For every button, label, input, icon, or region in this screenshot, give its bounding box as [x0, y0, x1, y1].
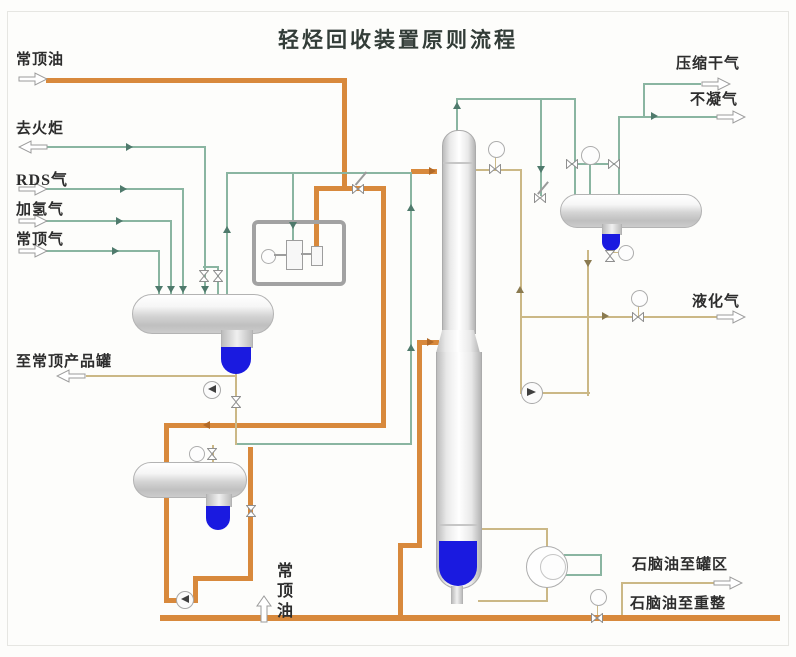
control-valve-icon — [352, 184, 364, 194]
instrument-circle — [189, 446, 205, 462]
bottoms-pump-arrow-icon — [181, 595, 189, 603]
page-title: 轻烃回收装置原则流程 — [0, 24, 796, 54]
valve-icon — [591, 613, 603, 623]
pipe-loop-top-h — [226, 172, 412, 174]
pipe-flare-v — [204, 146, 206, 266]
pipe-reboiler-stub-v — [600, 554, 602, 576]
pipe-ovhd-h — [456, 98, 576, 100]
bottom-drum-vessel — [133, 462, 247, 498]
stream-connector-icon — [18, 72, 48, 86]
pipe-inst-stem — [589, 164, 591, 196]
valve-icon — [608, 159, 620, 169]
stream-connector-icon — [18, 140, 48, 154]
pipe-drum2-in-v1 — [540, 98, 542, 196]
pipe-h2-h — [44, 220, 172, 222]
flow-arrow — [651, 112, 658, 120]
pipe-rds-v — [182, 188, 184, 297]
pipe-left-down-v — [164, 428, 169, 602]
pipe-bottoms-h — [160, 615, 780, 621]
column-seam-bottom — [438, 524, 478, 526]
flow-arrow — [584, 260, 592, 267]
pipe-loop-left-v — [226, 172, 228, 297]
instrument-circle — [581, 146, 600, 165]
bottom-drum-boot-liquid — [206, 506, 230, 530]
valve-icon — [213, 270, 223, 282]
instrument-circle — [590, 589, 607, 606]
flow-arrow — [167, 286, 175, 293]
flow-arrow — [537, 166, 545, 173]
pipe-boot2-drain-v — [587, 250, 589, 396]
label-compressed-dry-gas: 压缩干气 — [676, 52, 740, 73]
flow-arrow — [201, 286, 209, 293]
valve-icon — [566, 159, 578, 169]
valve-icon — [489, 164, 501, 174]
pipe-ovhgas-h — [44, 250, 160, 252]
label-non-condensable-gas: 不凝气 — [690, 88, 738, 109]
reflux-pump-arrow-icon — [527, 388, 536, 396]
pipe-naphtha-tank-v — [621, 584, 623, 615]
pipe-loop-bottom-h — [237, 443, 412, 445]
pipe-pump3-suction-h — [542, 392, 590, 394]
stream-connector-icon — [713, 576, 743, 590]
column-bottom-liquid — [439, 541, 477, 586]
valve-icon — [632, 312, 644, 322]
valve-icon — [199, 270, 209, 282]
pipe-zigzag-h — [193, 576, 253, 581]
flow-arrow — [289, 222, 297, 229]
flow-arrow — [155, 286, 163, 293]
pipe-reboiler-d — [478, 600, 548, 602]
flow-arrow — [407, 344, 415, 351]
stream-connector-icon — [716, 310, 746, 324]
compressor-outlet-pot — [311, 246, 323, 266]
pipe-boot1-drain-a — [235, 372, 237, 398]
valve-icon — [207, 448, 217, 460]
pipe-product-tank-h — [86, 375, 236, 377]
label-rds-gas: RDS气 — [16, 166, 68, 190]
column-upper-section — [442, 130, 476, 334]
pipe-lower-h — [164, 423, 386, 428]
label-to-product-tank: 至常顶产品罐 — [16, 350, 112, 371]
pipe-lpg-h — [520, 316, 718, 318]
column-seam-top — [443, 162, 473, 164]
flow-arrow — [429, 167, 436, 175]
flow-arrow — [112, 247, 119, 255]
control-valve-icon — [534, 193, 546, 203]
pipe-reboiler-a — [478, 528, 548, 530]
flow-arrow — [179, 286, 187, 293]
pipe-bypass-v — [381, 191, 386, 425]
flow-arrow — [602, 312, 609, 320]
flow-arrow — [120, 185, 127, 193]
instrument-circle — [631, 290, 648, 307]
label-naphtha-to-tank-farm: 石脑油至罐区 — [632, 553, 728, 574]
flow-arrow — [116, 217, 123, 225]
pipe-naphtha-tank-h — [621, 582, 717, 584]
pipe-noncond-v — [618, 116, 620, 196]
pipe-columnfeed-jog-v — [398, 548, 403, 618]
right-drum-vessel — [560, 194, 702, 228]
pipe-drygas-h — [643, 83, 701, 85]
compressor-rod — [301, 253, 311, 255]
pipe-reboiler-stub2 — [564, 574, 602, 576]
compressor-cylinder — [286, 240, 303, 270]
pfd-canvas: 轻烃回收装置原则流程 — [0, 0, 796, 657]
valve-icon — [246, 505, 256, 517]
product-pump-arrow-icon — [208, 385, 216, 393]
stream-connector-icon — [716, 110, 746, 124]
instrument-circle — [488, 141, 505, 158]
flow-arrow — [427, 338, 434, 346]
label-atm-overhead-gas: 常顶气 — [16, 228, 64, 249]
compressor-driver-icon — [261, 249, 276, 264]
label-lpg: 液化气 — [692, 290, 740, 311]
pipe-flare-h — [44, 146, 206, 148]
pipe-reboiler-stub1 — [564, 554, 602, 556]
reboiler-tube — [540, 554, 566, 580]
pipe-noncond-h — [618, 116, 718, 118]
label-to-flare: 去火炬 — [16, 117, 64, 138]
left-drum-vessel — [132, 294, 274, 334]
label-atm-overhead-oil-top: 常顶油 — [16, 48, 64, 69]
pipe-reflux-v — [520, 169, 522, 394]
valve-icon — [231, 396, 241, 408]
pipe-overhead-oil-h — [46, 78, 346, 83]
pipe-boot1-drain-b — [235, 408, 237, 445]
left-drum-boot-neck — [221, 330, 253, 348]
compressor-shaft — [274, 254, 286, 256]
pipe-columnfeed-v — [417, 342, 422, 545]
flow-arrow — [203, 421, 210, 429]
stream-connector-icon — [56, 369, 86, 383]
pipe-drum2-in-v2 — [574, 98, 576, 196]
flow-arrow — [453, 102, 461, 109]
pipe-loop-right-v — [410, 172, 412, 443]
flow-arrow — [407, 204, 415, 211]
flow-arrow — [126, 143, 133, 151]
instrument-circle — [618, 245, 634, 261]
label-atm-overhead-oil-bottom: 常顶油 — [270, 562, 294, 622]
flow-arrow — [516, 286, 524, 293]
pipe-drygas-v — [643, 83, 645, 118]
flow-arrow — [223, 226, 231, 233]
label-naphtha-to-reforming: 石脑油至重整 — [630, 592, 726, 613]
label-hydrogenation-gas: 加氢气 — [16, 198, 64, 219]
column-taper — [436, 330, 480, 353]
column-outlet-stub — [451, 586, 463, 604]
pipe-tee-h — [314, 186, 386, 191]
valve-icon — [605, 250, 615, 262]
